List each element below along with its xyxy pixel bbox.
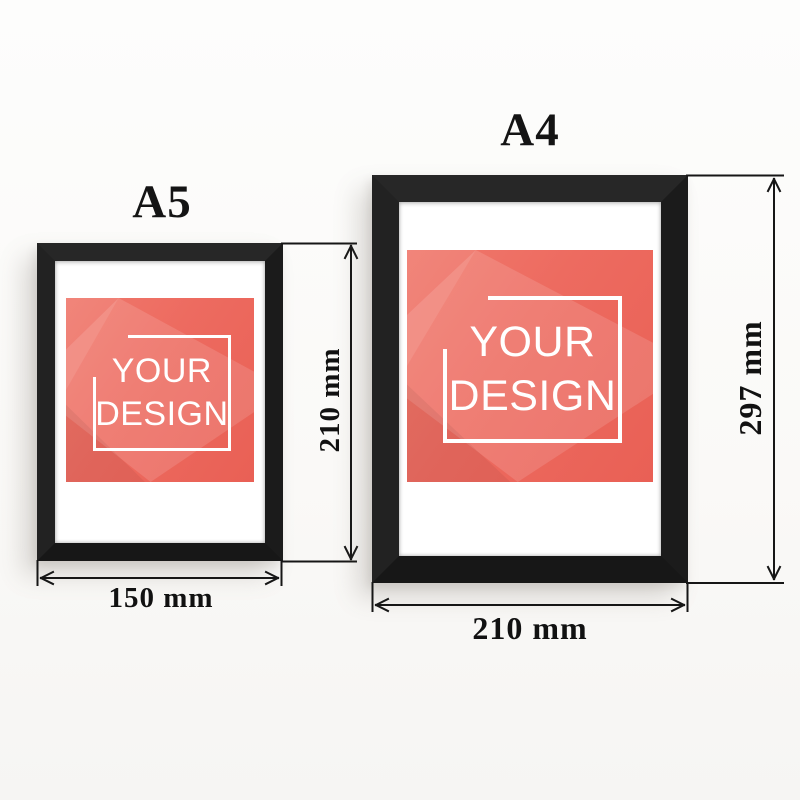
a4-design-artwork: YOUR DESIGN	[407, 250, 653, 482]
a5-title: A5	[82, 176, 242, 228]
a4-design-line2: DESIGN	[449, 369, 617, 423]
a5-mat: YOUR DESIGN	[55, 261, 265, 543]
paper-size-comparison-diagram: A5 YOUR DESIGN	[0, 0, 800, 800]
a4-height-label: 297 mm	[735, 308, 765, 448]
a5-picture-frame: YOUR DESIGN	[37, 243, 283, 561]
a4-title: A4	[450, 104, 610, 156]
a5-design-line2: DESIGN	[95, 393, 228, 436]
a4-mat: YOUR DESIGN	[399, 202, 661, 556]
a4-picture-frame: YOUR DESIGN	[372, 175, 688, 583]
a4-your-design-text: YOUR DESIGN	[443, 296, 623, 442]
a5-your-design-text: YOUR DESIGN	[93, 335, 230, 451]
a4-design-line1: YOUR	[469, 315, 595, 369]
a5-design-artwork: YOUR DESIGN	[66, 298, 254, 482]
a5-design-outline-box: YOUR DESIGN	[93, 335, 230, 451]
a4-design-outline-box: YOUR DESIGN	[443, 296, 623, 442]
a5-design-line1: YOUR	[112, 350, 212, 393]
a5-width-label: 150 mm	[81, 583, 241, 613]
a5-height-label: 210 mm	[315, 330, 345, 470]
a4-width-label: 210 mm	[450, 613, 610, 643]
